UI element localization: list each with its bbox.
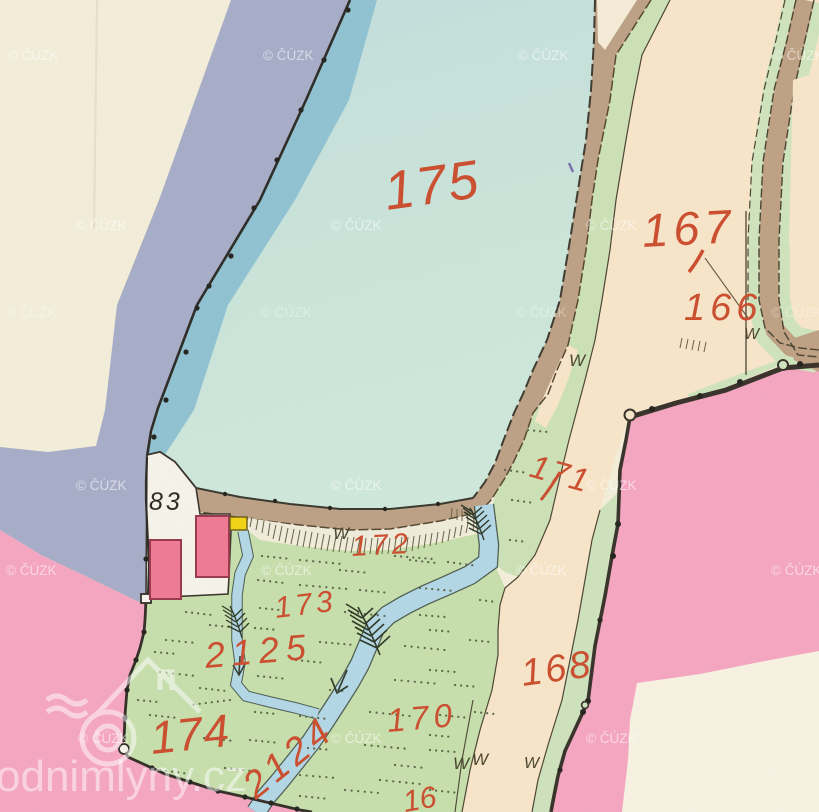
svg-text:vodnimlyny.cz: vodnimlyny.cz xyxy=(0,752,247,801)
svg-text:© ČÚZK: © ČÚZK xyxy=(771,563,819,578)
svg-text:© ČÚZK: © ČÚZK xyxy=(331,218,381,233)
svg-text:© ČÚZK: © ČÚZK xyxy=(76,218,126,233)
svg-text:© ČÚZK: © ČÚZK xyxy=(76,478,126,493)
svg-text:© ČÚZK: © ČÚZK xyxy=(261,305,311,320)
svg-text:© ČÚZK: © ČÚZK xyxy=(8,48,58,63)
svg-text:© ČÚZK: © ČÚZK xyxy=(586,731,636,746)
svg-text:© ČÚZK: © ČÚZK xyxy=(516,563,566,578)
svg-text:© ČÚZK: © ČÚZK xyxy=(261,563,311,578)
svg-text:© ČÚZK: © ČÚZK xyxy=(773,48,819,63)
svg-text:© ČÚZK: © ČÚZK xyxy=(6,305,56,320)
svg-text:© ČÚZK: © ČÚZK xyxy=(331,478,381,493)
svg-text:© ČÚZK: © ČÚZK xyxy=(771,305,819,320)
svg-text:© ČÚZK: © ČÚZK xyxy=(586,218,636,233)
svg-text:© ČÚZK: © ČÚZK xyxy=(518,48,568,63)
svg-text:© ČÚZK: © ČÚZK xyxy=(6,563,56,578)
svg-text:© ČÚZK: © ČÚZK xyxy=(263,48,313,63)
svg-text:© ČÚZK: © ČÚZK xyxy=(586,478,636,493)
svg-text:© ČÚZK: © ČÚZK xyxy=(516,305,566,320)
svg-text:© ČÚZK: © ČÚZK xyxy=(331,731,381,746)
